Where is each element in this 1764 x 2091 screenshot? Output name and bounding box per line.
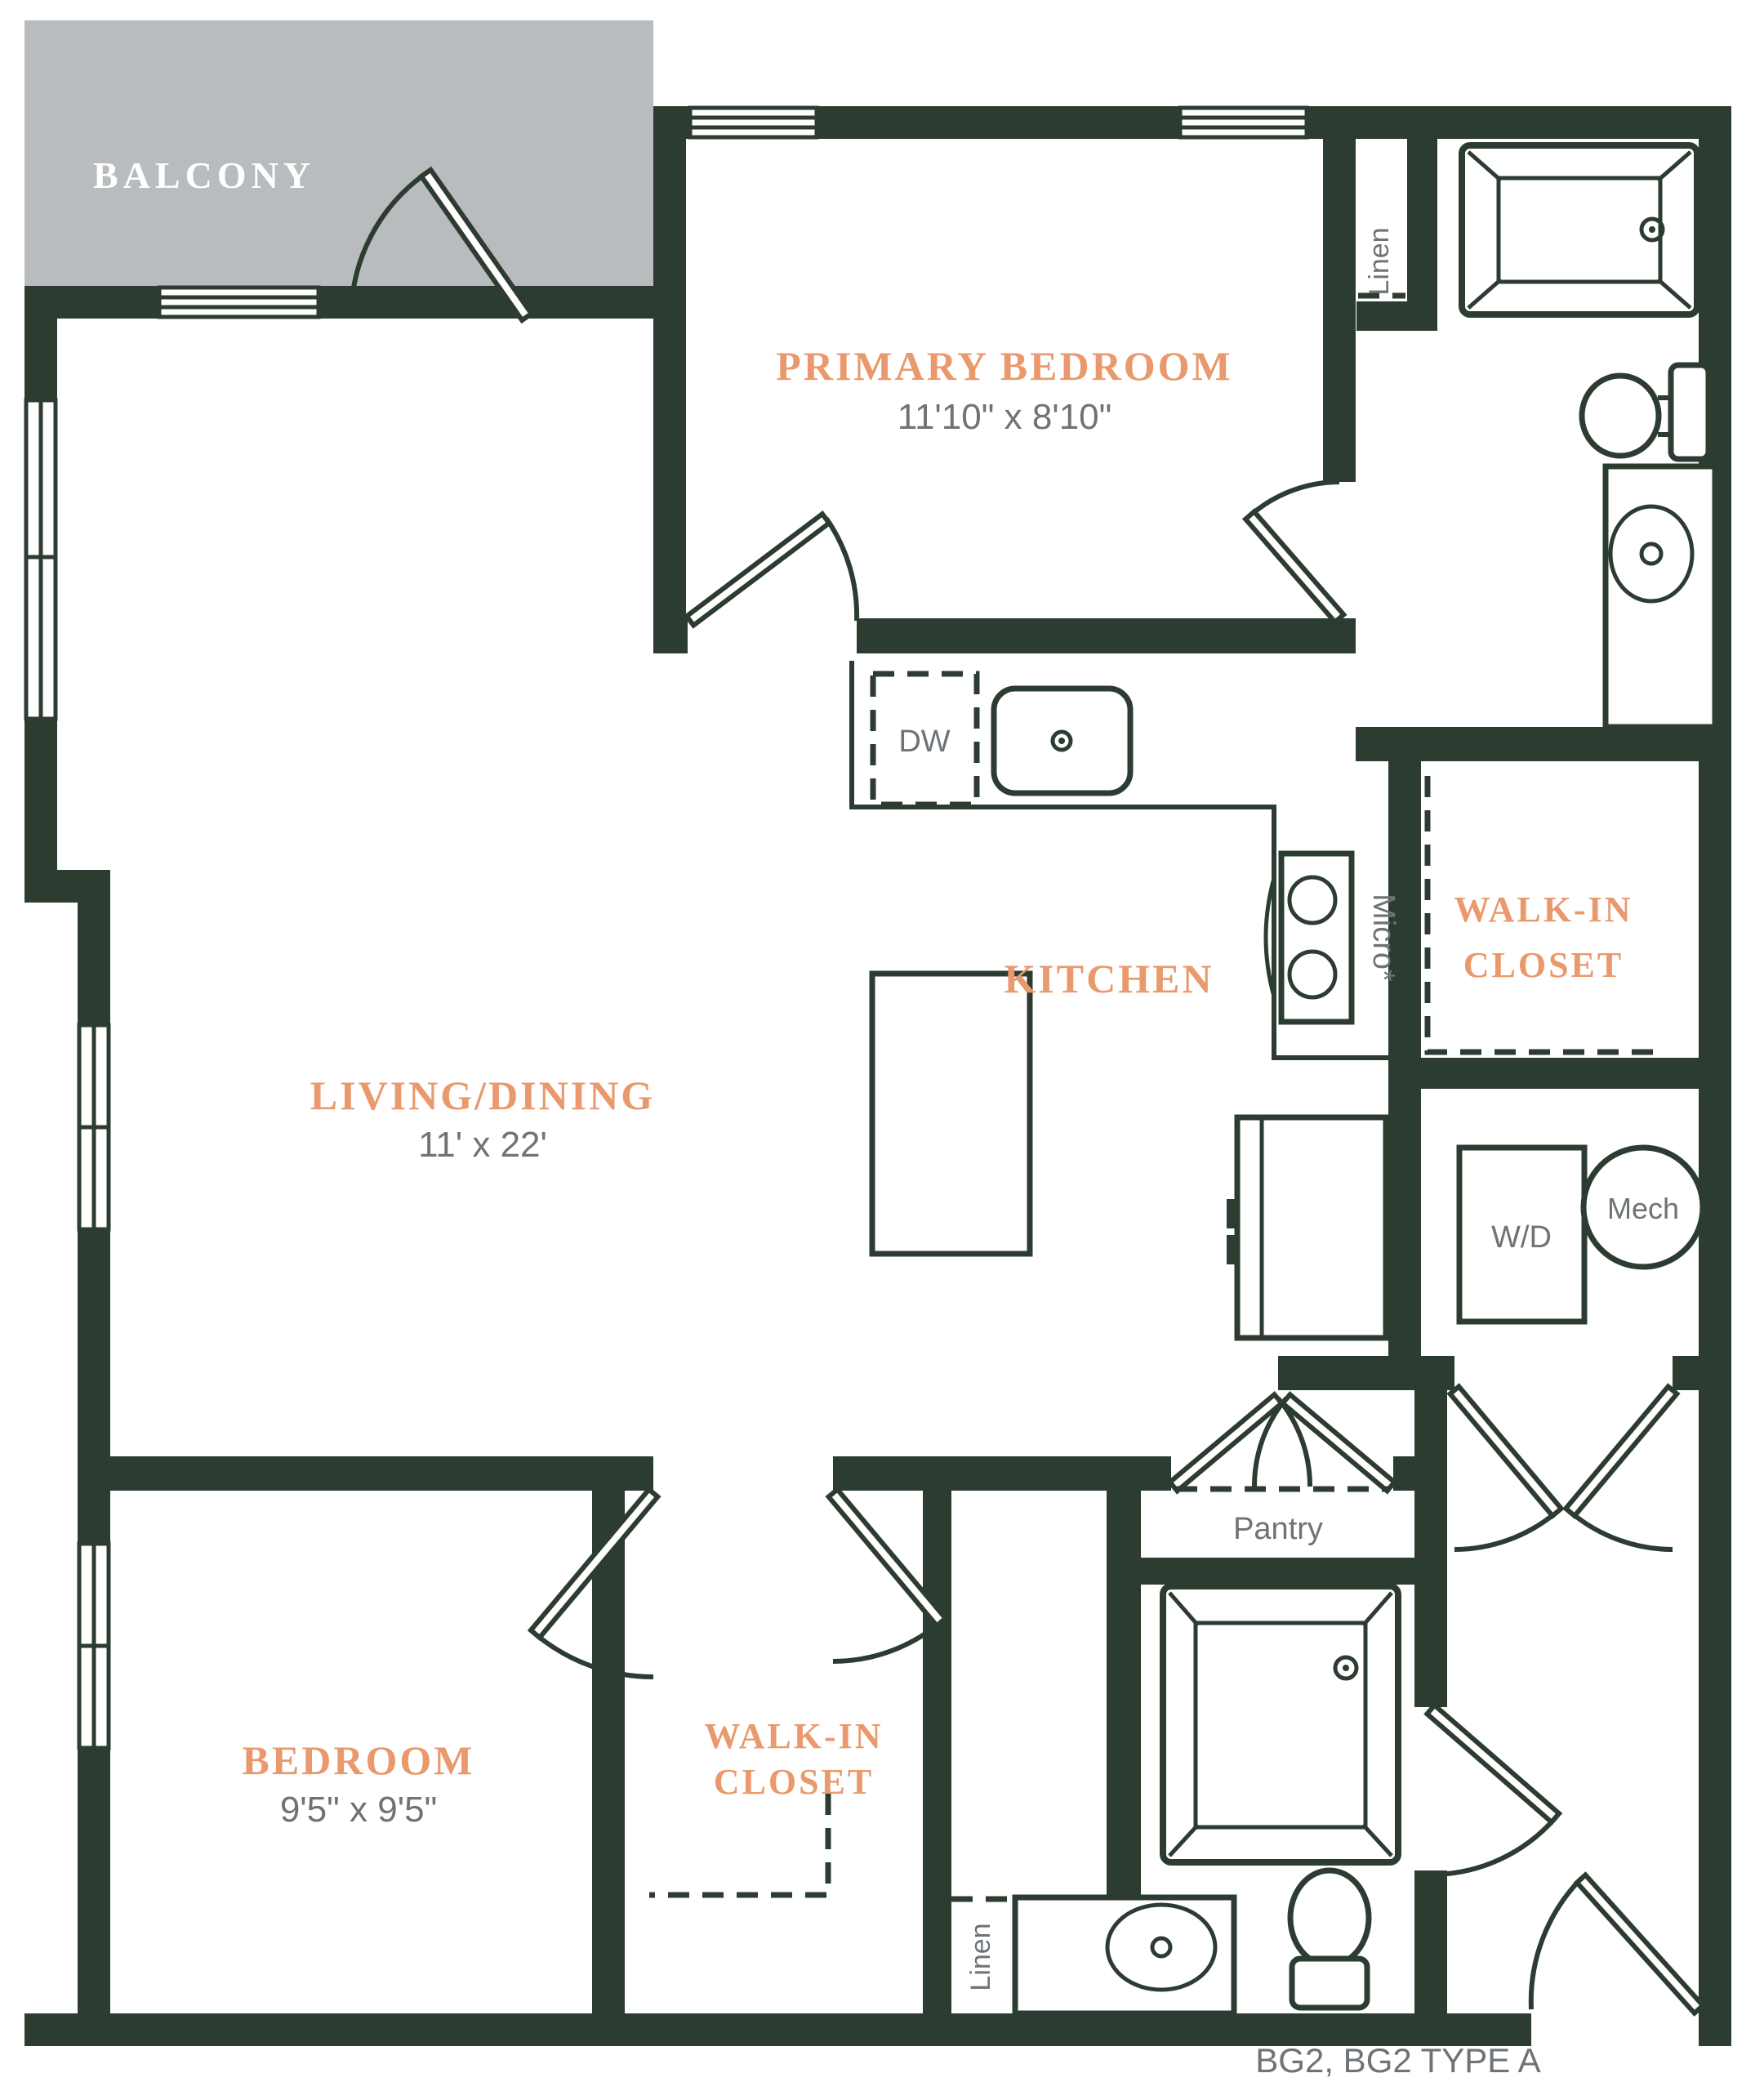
bath2-fixtures (1015, 1586, 1398, 2013)
kitchen-island (872, 974, 1030, 1254)
kitchen-label: KITCHEN (1004, 956, 1214, 1001)
window (79, 1544, 109, 1748)
door-leaf (687, 514, 830, 625)
pantry-label: Pantry (1233, 1512, 1323, 1546)
wall-segment (833, 1456, 1171, 1491)
door-swing-arc (1571, 1513, 1673, 1549)
wall-segment (653, 139, 686, 618)
bedroom-label: BEDROOM (243, 1737, 475, 1783)
bedroom-wic-label-line1: WALK-IN (704, 1716, 883, 1756)
dishwasher-label: DW (898, 724, 950, 759)
wall-segment (1414, 1390, 1447, 1707)
door-swing-arc (1431, 1817, 1556, 1875)
mechanical-label: Mech (1607, 1192, 1679, 1225)
door-swing-arc (1249, 482, 1339, 516)
primary-wic-label-line2: CLOSET (1463, 945, 1624, 985)
bedroom-dims: 9'5" x 9'5" (280, 1790, 437, 1830)
primary-bedroom-label: PRIMARY BEDROOM (776, 343, 1232, 389)
window (1180, 108, 1307, 137)
wall-segment (24, 286, 653, 319)
door-leaf (1577, 1875, 1703, 2013)
toilet (1290, 1870, 1369, 2008)
door-leaf (1170, 1394, 1282, 1491)
bathtub (1462, 145, 1697, 314)
toilet (1582, 365, 1708, 459)
wall-segment (1421, 1058, 1699, 1089)
wall-segment (1673, 1356, 1731, 1390)
primary-wic-label-line1: WALK-IN (1454, 889, 1633, 930)
linen-label: Linen (1364, 227, 1395, 295)
door-leaf (1566, 1387, 1677, 1516)
vanity-sink (1606, 466, 1715, 727)
living-dining-dims: 11' x 22' (418, 1125, 547, 1165)
vanity-sink (1015, 1897, 1234, 2013)
door-leaf (1245, 511, 1343, 622)
wall-segment (653, 618, 688, 653)
door-leaf (1283, 1394, 1395, 1491)
wall-segment (1278, 1356, 1454, 1390)
plan-title: BG2, BG2 TYPE A (1255, 2041, 1540, 2080)
door-swing-arc (1531, 1879, 1581, 2009)
wall-segment (1407, 139, 1437, 319)
window (159, 288, 318, 317)
balcony-area (24, 20, 653, 286)
wall-segment (1388, 727, 1421, 1356)
window (79, 1025, 109, 1229)
door-swing-arc (826, 519, 857, 621)
balcony-label: BALCONY (93, 154, 315, 196)
wall-segment (923, 1491, 951, 2013)
window (690, 108, 817, 137)
wall-segment (1414, 1870, 1447, 2013)
wall-segment (1107, 1491, 1141, 1897)
living-dining-label: LIVING/DINING (310, 1072, 655, 1118)
faucet-dot (1058, 738, 1065, 744)
primary-bath-fixtures (1462, 145, 1715, 727)
linen2-label: Linen (965, 1923, 996, 1991)
window (26, 400, 56, 719)
floor-plan-page: BALCONY (0, 0, 1764, 2091)
door-leaf (1427, 1705, 1559, 1822)
primary-bedroom-dims: 11'10" x 8'10" (898, 397, 1112, 437)
wall-segment (1323, 139, 1356, 482)
wall-segment (1699, 2013, 1731, 2046)
wall-segment (109, 1456, 653, 1491)
wall-segment (1141, 1558, 1414, 1585)
floor-plan-canvas: BALCONY (0, 0, 1764, 2091)
bathtub (1163, 1586, 1398, 1862)
microwave-label: Micro* (1366, 894, 1401, 982)
refrigerator (1227, 1117, 1386, 1338)
wall-segment (1356, 301, 1437, 331)
walk-in-closet2-dash (649, 1794, 828, 1895)
wall-segment (857, 618, 1356, 653)
bedroom-wic-label-line2: CLOSET (714, 1762, 875, 1802)
door-swing-arc (1454, 1513, 1556, 1549)
washer-dryer-label: W/D (1491, 1220, 1552, 1255)
door-leaf (1450, 1387, 1561, 1516)
